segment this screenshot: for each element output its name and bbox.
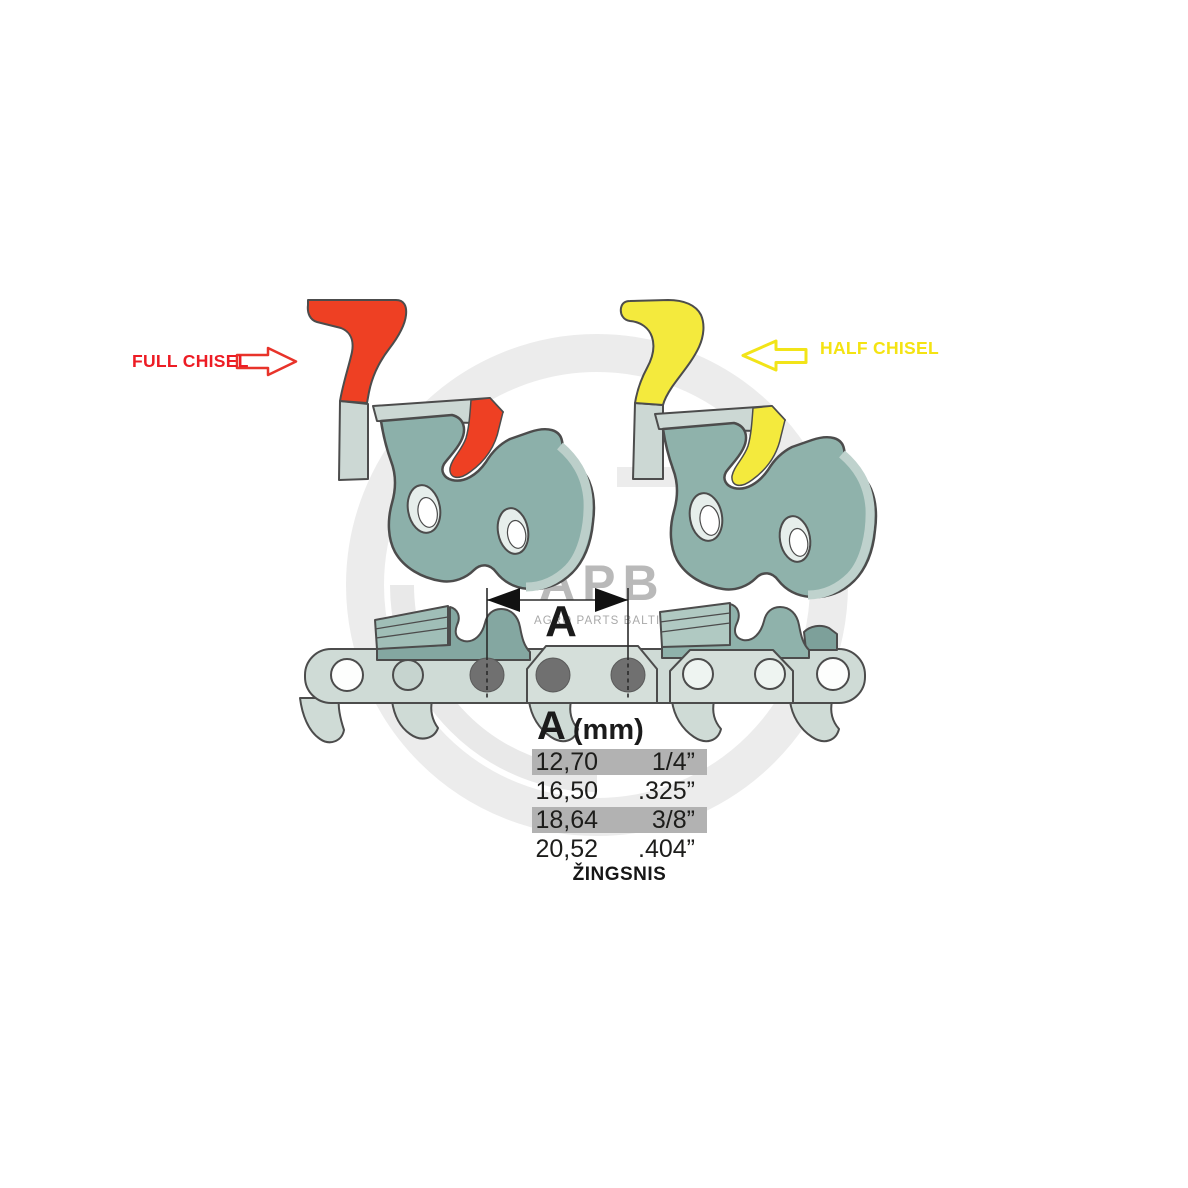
pitch-mm-value: 18,64 — [532, 807, 598, 833]
chain-hole-4 — [755, 659, 785, 689]
chain-hole-1 — [331, 659, 363, 691]
pitch-mm-value: 20,52 — [532, 836, 598, 862]
chain-hole-2 — [393, 660, 423, 690]
pitch-table-header: A (mm) — [537, 704, 644, 749]
pitch-table-header-unit: (mm) — [573, 714, 644, 747]
pitch-inch-value: .325” — [615, 778, 695, 804]
pitch-mm-value: 16,50 — [532, 778, 598, 804]
full-chisel-link-3d — [373, 398, 594, 589]
pitch-caption: ŽINGSNIS — [532, 864, 707, 886]
chainsaw-chain-pitch-diagram: APB AGRO PARTS BALTIJA — [0, 0, 1188, 1188]
table-row: 16,50 .325” — [532, 778, 707, 804]
chain-hole-5 — [817, 658, 849, 690]
table-row: 18,64 3/8” — [532, 807, 707, 833]
full-chisel-label: FULL CHISEL — [132, 351, 249, 372]
pitch-inch-value: 3/8” — [615, 807, 695, 833]
pitch-table: 12,70 1/4” 16,50 .325” 18,64 3/8” 20,52 … — [532, 749, 707, 865]
chain-rivet-2 — [536, 658, 570, 692]
table-row: 20,52 .404” — [532, 836, 707, 862]
table-row: 12,70 1/4” — [532, 749, 707, 775]
half-chisel-label: HALF CHISEL — [820, 338, 939, 359]
pitch-mm-value: 12,70 — [532, 749, 598, 775]
dimension-a-label: A — [536, 597, 586, 647]
half-chisel-link-3d — [655, 406, 876, 597]
half-chisel-arrow-icon — [743, 341, 806, 370]
chain-hole-3 — [683, 659, 713, 689]
pitch-table-header-symbol: A — [537, 704, 566, 749]
pitch-inch-value: .404” — [615, 836, 695, 862]
pitch-inch-value: 1/4” — [615, 749, 695, 775]
diagram-artwork: APB AGRO PARTS BALTIJA — [0, 0, 1188, 1188]
full-chisel-profile-edge — [308, 300, 406, 403]
full-chisel-profile-body — [339, 401, 368, 480]
